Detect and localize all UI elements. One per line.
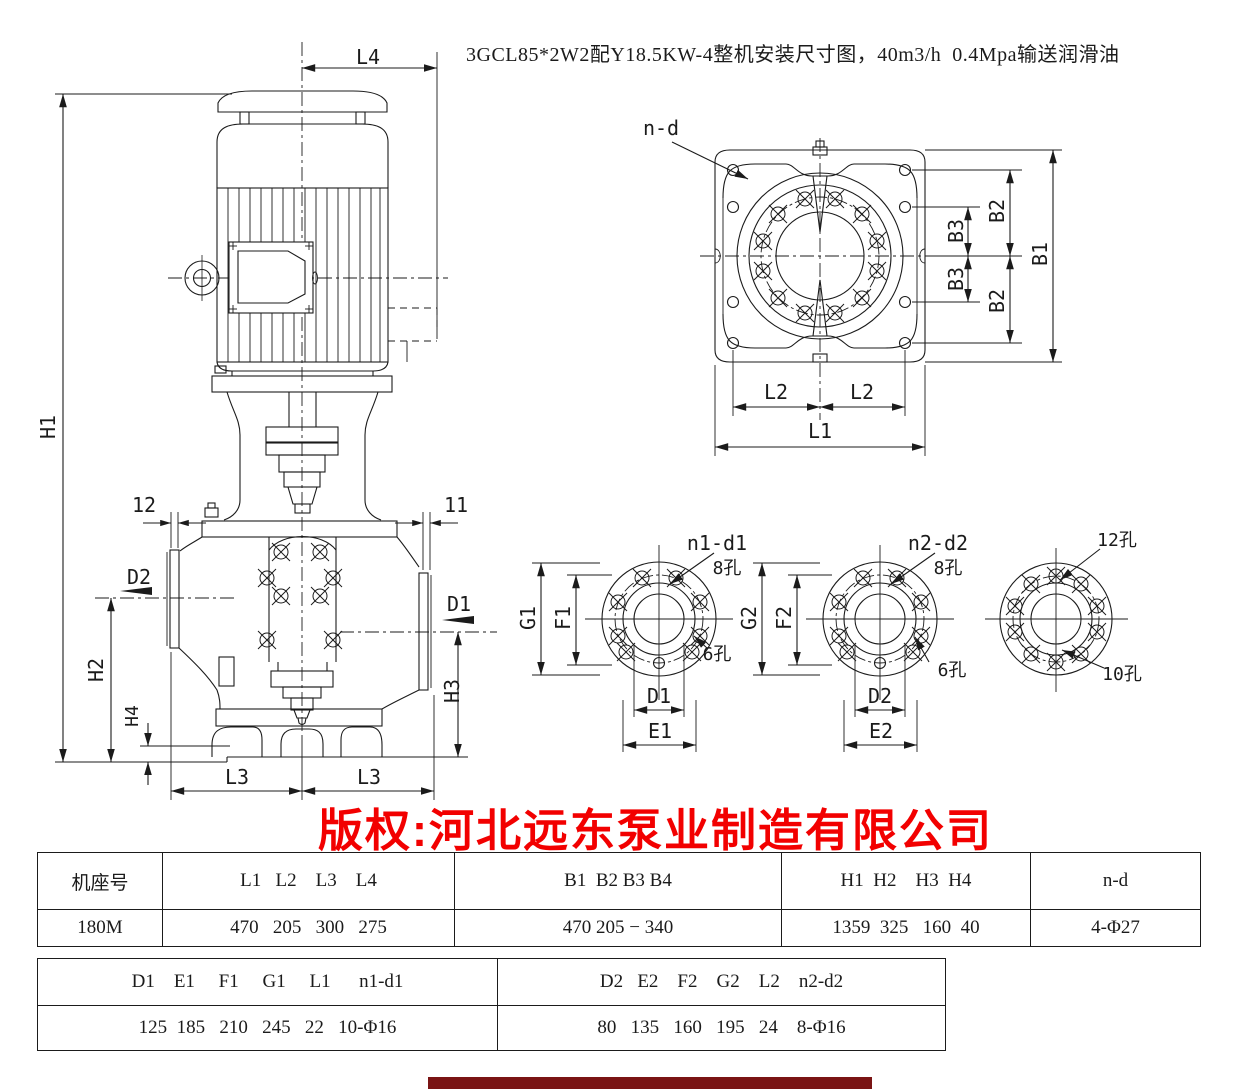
copyright-watermark: 版权:河北远东泵业制造有限公司 [318, 794, 993, 859]
table1-header-l: L1 L2 L3 L4 [163, 853, 455, 910]
pump-elevation-view [55, 42, 497, 800]
table1-header-h: H1 H2 H3 H4 [782, 853, 1031, 910]
table1-header-nd: n-d [1031, 853, 1201, 910]
dim-label-b1: B1 [1030, 242, 1050, 266]
table2-cell-flange1: 125 185 210 245 22 10-Φ16 [38, 1006, 498, 1051]
table1-cell-frame: 180M [38, 910, 163, 947]
dim-label-f2: F2 [774, 606, 794, 630]
dim-label-e1: E1 [648, 721, 672, 741]
dim-label-h3: H3 [442, 679, 462, 703]
dim-label-h4: H4 [124, 705, 142, 727]
label-8-holes-2: 8孔 [934, 560, 963, 578]
dim-label-l3-left: L3 [225, 767, 249, 787]
dim-label-l2-right: L2 [850, 382, 874, 402]
dim-label-b2-top: B2 [987, 199, 1007, 223]
table1-cell-h: 1359 325 160 40 [782, 910, 1031, 947]
callout-n1-d1: n1-d1 [687, 533, 747, 553]
dim-label-l1: L1 [808, 421, 832, 441]
flange-detail-2 [753, 545, 954, 752]
dim-label-11: 11 [444, 495, 468, 515]
table1-header-frame: 机座号 [38, 853, 163, 910]
drawing-title: 3GCL85*2W2配Y18.5KW-4整机安装尺寸图，40m3/h 0.4Mp… [466, 38, 1119, 67]
table1-cell-b: 470 205 − 340 [455, 910, 782, 947]
dim-label-f1: F1 [553, 606, 573, 630]
dim-label-d1: D1 [447, 594, 471, 614]
table2-header-flange2: D2 E2 F2 G2 L2 n2-d2 [498, 959, 946, 1006]
dim-label-l2-left: L2 [764, 382, 788, 402]
table2-header-flange1: D1 E1 F1 G1 L1 n1-d1 [38, 959, 498, 1006]
dim-label-l3-right: L3 [357, 767, 381, 787]
dim-label-d2: D2 [127, 567, 151, 587]
label-12-holes: 12孔 [1097, 532, 1137, 550]
callout-n-d: n-d [643, 118, 679, 138]
label-10-holes: 10孔 [1102, 666, 1142, 684]
dim-label-d1-flange: D1 [647, 686, 671, 706]
label-8-holes-1: 8孔 [713, 560, 742, 578]
dim-label-e2: E2 [869, 721, 893, 741]
dim-label-h1: H1 [38, 415, 58, 439]
callout-n2-d2: n2-d2 [908, 533, 968, 553]
bottom-red-bar [428, 1077, 872, 1089]
technical-drawing-canvas [0, 0, 1249, 860]
table-row: 180M 470 205 300 275 470 205 − 340 1359 … [38, 910, 1201, 947]
table1-cell-nd: 4-Φ27 [1031, 910, 1201, 947]
table1-cell-l: 470 205 300 275 [163, 910, 455, 947]
label-6-holes-1: 6孔 [703, 646, 732, 664]
dimension-table-main: 机座号 L1 L2 L3 L4 B1 B2 B3 B4 H1 H2 H3 H4 … [37, 852, 1201, 947]
dim-label-d2-flange: D2 [868, 686, 892, 706]
dim-label-g2: G2 [739, 606, 759, 630]
dim-label-h2: H2 [86, 658, 106, 682]
table1-header-b: B1 B2 B3 B4 [455, 853, 782, 910]
dim-label-b2-bottom: B2 [987, 289, 1007, 313]
dim-label-g1: G1 [518, 606, 538, 630]
label-6-holes-2: 6孔 [938, 662, 967, 680]
dimension-table-flanges: D1 E1 F1 G1 L1 n1-d1 D2 E2 F2 G2 L2 n2-d… [37, 958, 946, 1051]
drawing-page: 3GCL85*2W2配Y18.5KW-4整机安装尺寸图，40m3/h 0.4Mp… [0, 0, 1249, 1089]
dim-label-12: 12 [132, 495, 156, 515]
dim-label-l4: L4 [356, 47, 380, 67]
dim-label-b3-top: B3 [946, 219, 966, 243]
dim-label-b3-bottom: B3 [946, 267, 966, 291]
table2-cell-flange2: 80 135 160 195 24 8-Φ16 [498, 1006, 946, 1051]
table-row: 125 185 210 245 22 10-Φ16 80 135 160 195… [38, 1006, 946, 1051]
